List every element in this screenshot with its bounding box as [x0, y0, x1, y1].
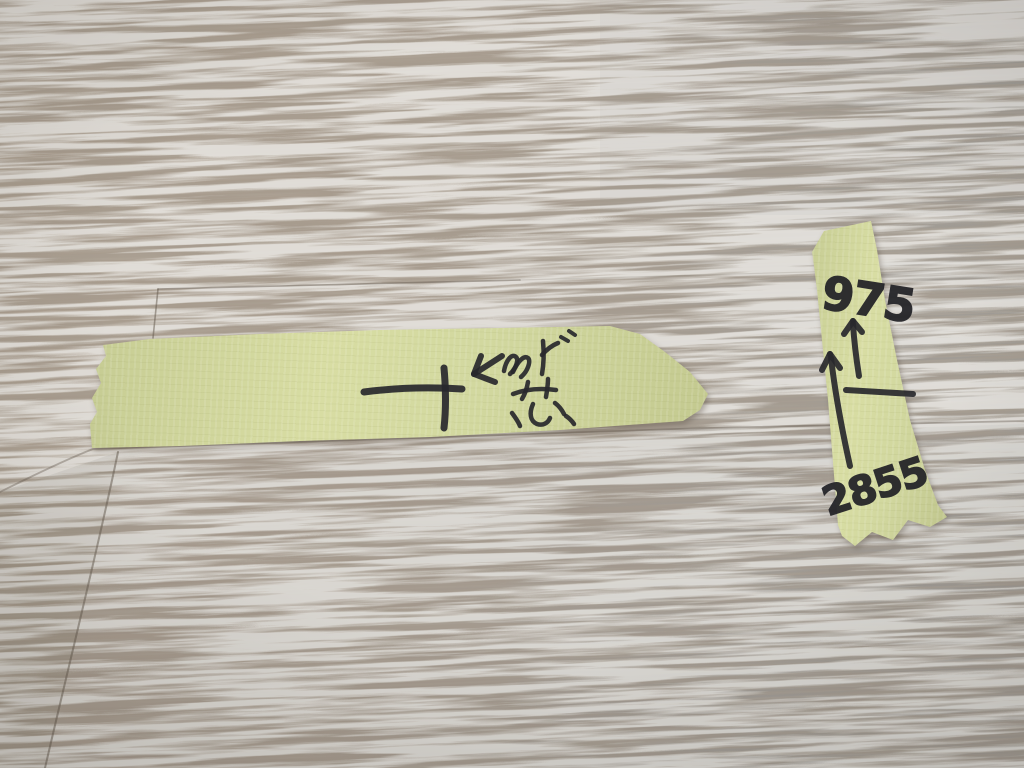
- masking-tape-vertical-surface: [808, 218, 950, 550]
- masking-tape-vertical: [808, 218, 950, 550]
- masking-tape-horizontal-surface: [88, 324, 710, 452]
- photo-tape-markings-on-floor: 975 2855: [0, 0, 1024, 768]
- plank-top-right: [600, 0, 1024, 215]
- masking-tape-horizontal: [88, 324, 710, 452]
